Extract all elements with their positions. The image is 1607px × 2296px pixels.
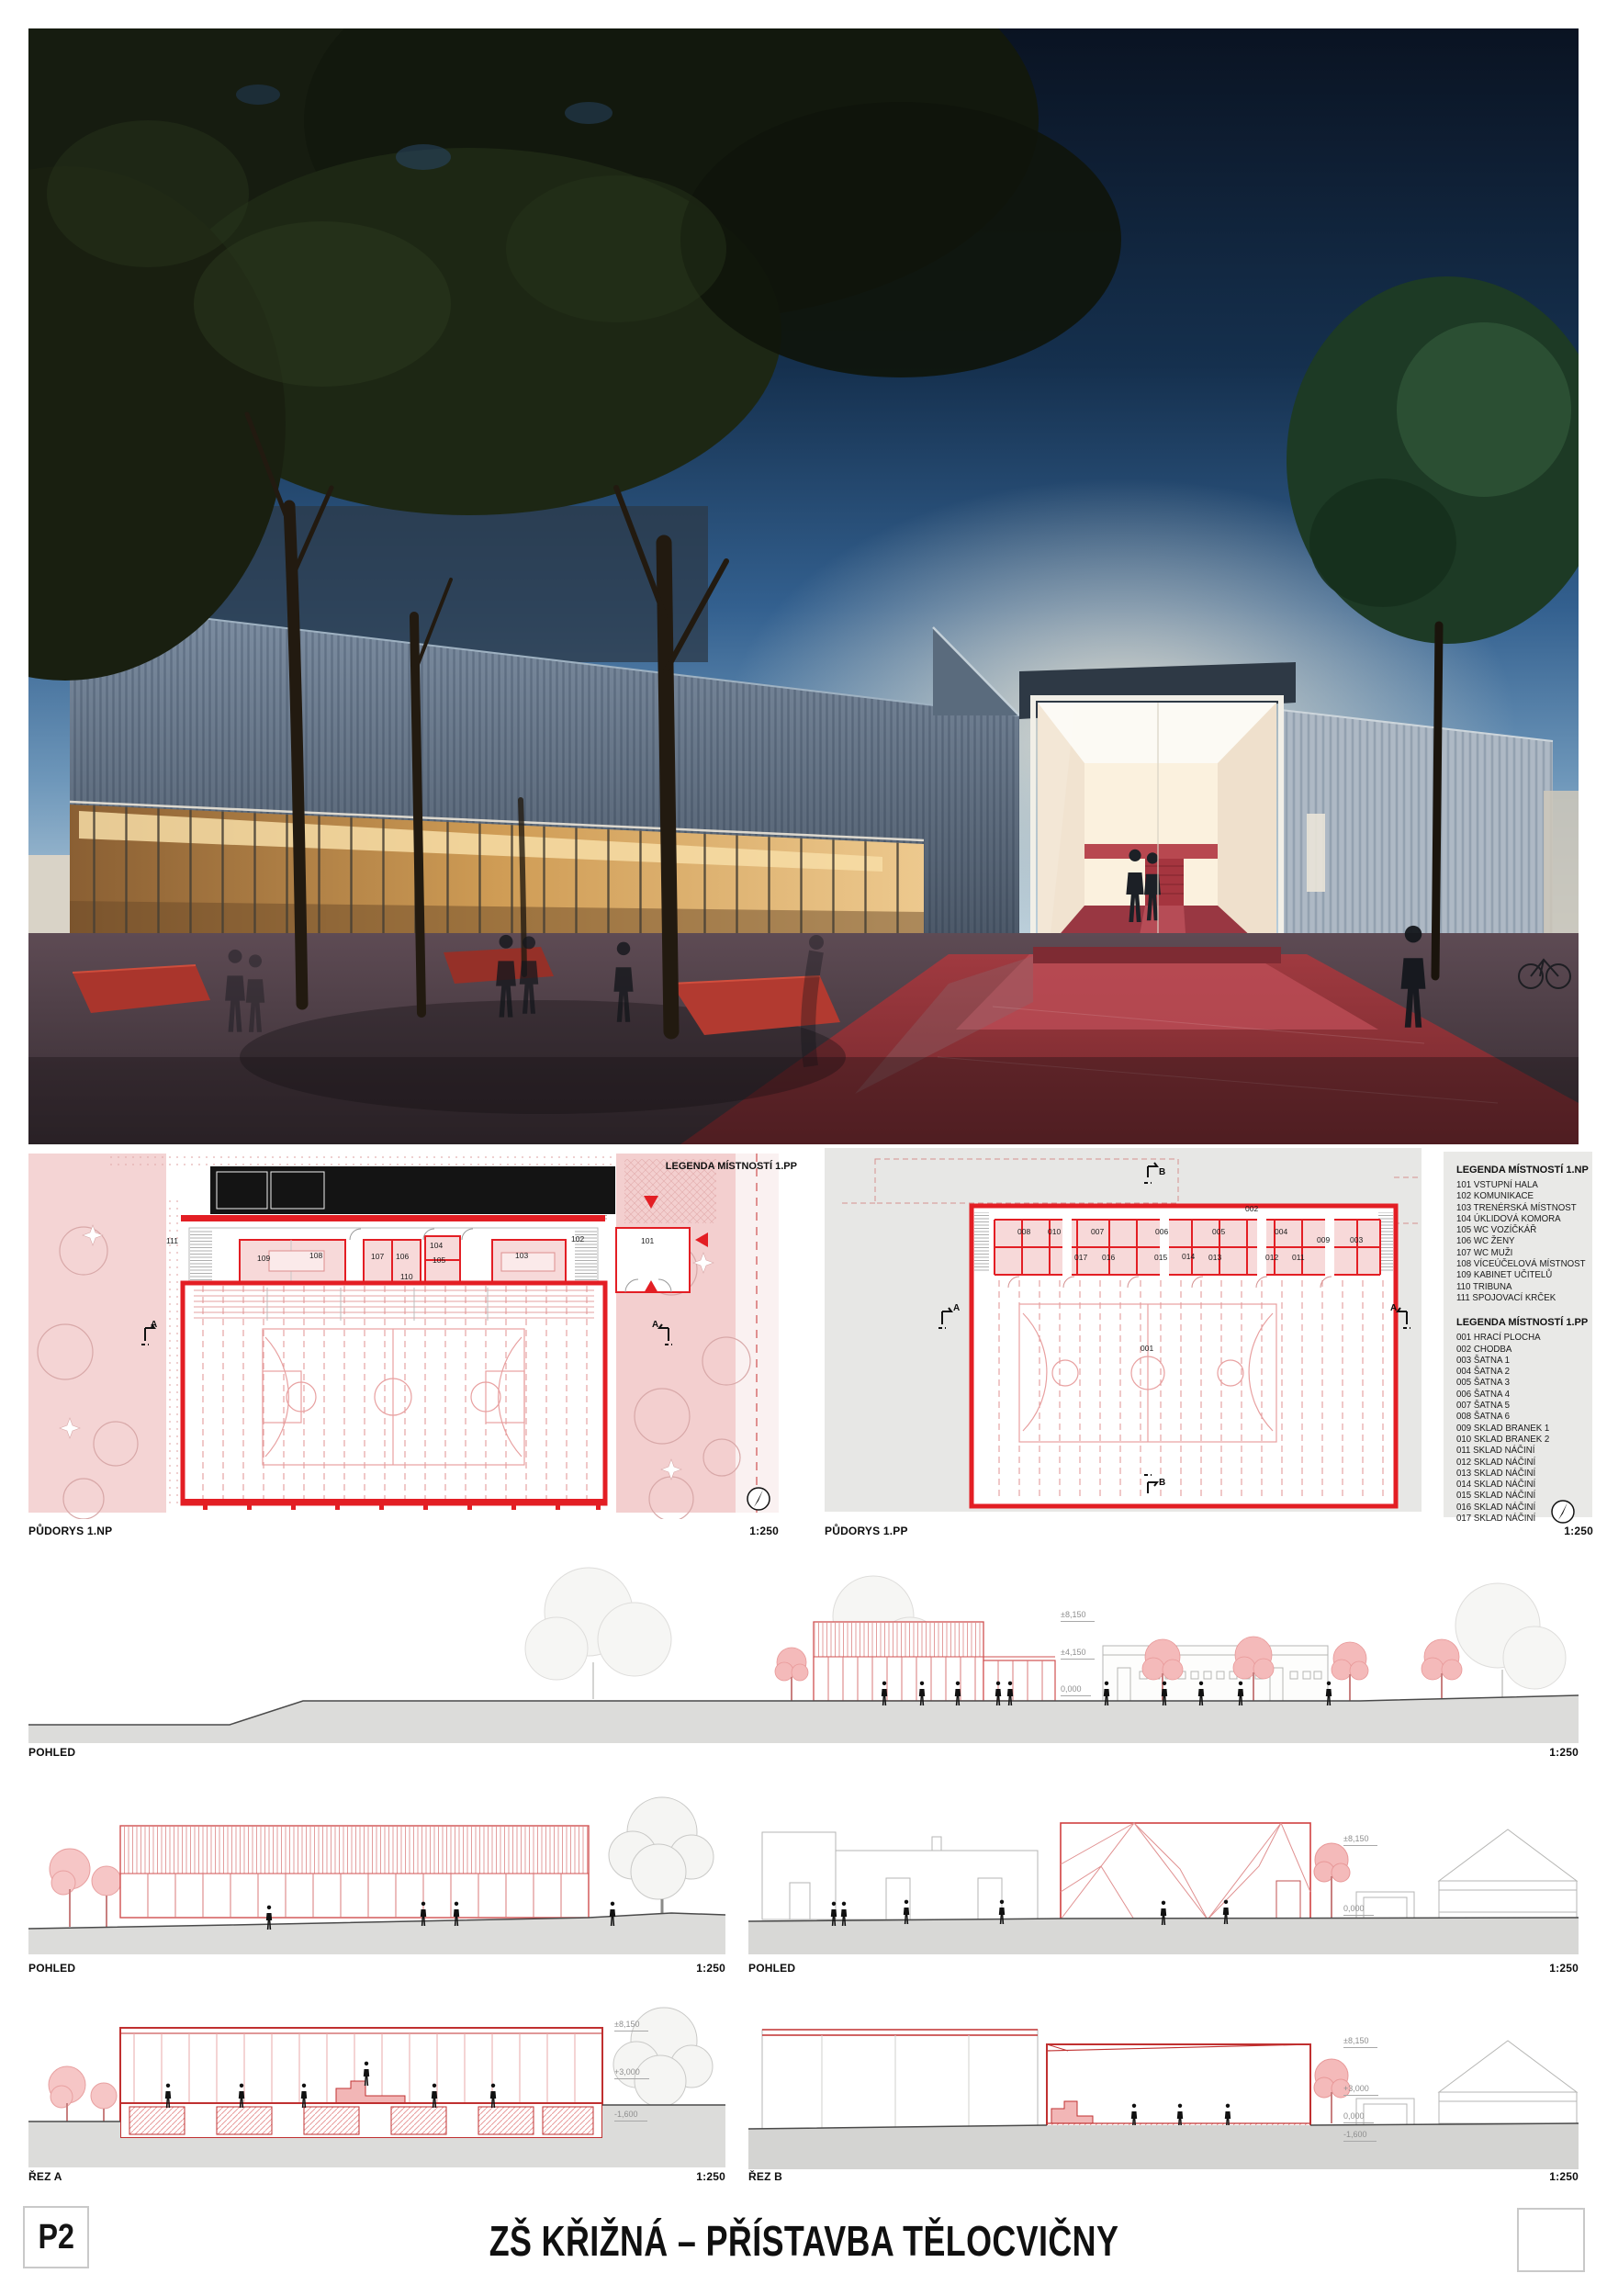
room-number: 008 — [1017, 1228, 1030, 1236]
level-annotation: ±8,150 — [1343, 1835, 1377, 1846]
legend-item: 011 SKLAD NÁČINÍ — [1456, 1446, 1587, 1457]
legend-item: 013 SKLAD NÁČINÍ — [1456, 1469, 1587, 1480]
existing-school-elevation — [1103, 1646, 1328, 1701]
legend-pp-title: LEGENDA MÍSTNOSTÍ 1.PP — [1456, 1317, 1587, 1328]
plan-np-drawing — [28, 1141, 779, 1519]
legend-item: 003 ŠATNA 1 — [1456, 1356, 1587, 1367]
new-gym-elevation — [814, 1622, 1055, 1701]
gable-house-outline — [1439, 1829, 1577, 1918]
legend-item: 108 VÍCEÚČELOVÁ MÍSTNOST — [1456, 1259, 1587, 1270]
np-hall — [183, 1283, 605, 1510]
legend-item: 006 ŠATNA 4 — [1456, 1390, 1587, 1401]
room-number: 103 — [515, 1252, 528, 1260]
legend-item: 009 SKLAD BRANEK 1 — [1456, 1424, 1587, 1435]
section-b-scale: 1:250 — [1549, 2170, 1579, 2183]
plan-np-caption-label: PŮDORYS 1.NP — [28, 1525, 112, 1537]
legend-item: 106 WC ŽENY — [1456, 1236, 1587, 1247]
level-annotation: ±4,150 — [1061, 1649, 1095, 1660]
north-arrow-icon — [1545, 1493, 1581, 1530]
room-number: 108 — [309, 1252, 322, 1260]
existing-buildings — [762, 1832, 1038, 1919]
room-number: 107 — [371, 1253, 384, 1261]
plan-np-legend-title: LEGENDA MÍSTNOSTÍ 1.PP — [666, 1161, 797, 1172]
room-number: 007 — [1091, 1228, 1104, 1236]
existing-school-black — [210, 1166, 615, 1221]
level-annotation: ±8,150 — [1061, 1611, 1095, 1622]
elevation-west-drawing — [28, 1782, 725, 1954]
section-marker-b: B — [1159, 1479, 1165, 1488]
room-number: 010 — [1048, 1228, 1061, 1236]
level-annotation: 0,000 — [1061, 1685, 1091, 1696]
hall-section — [120, 2028, 602, 2138]
room-number: 016 — [1102, 1254, 1115, 1262]
elevation-west-scale: 1:250 — [696, 1962, 725, 1975]
level-annotation: 0,000 — [1343, 2112, 1374, 2123]
plan-pp-panel: 008 010 007 006 005 004 009 003 017 016 … — [825, 1141, 1422, 1519]
room-number: 012 — [1265, 1254, 1278, 1262]
legend-item: 014 SKLAD NÁČINÍ — [1456, 1480, 1587, 1491]
plan-pp-drawing — [825, 1141, 1422, 1519]
elevation-main-scale: 1:250 — [1549, 1746, 1579, 1759]
level-annotation: 0,000 — [1343, 1905, 1374, 1916]
legend-item: 109 KABINET UČITELŮ — [1456, 1270, 1587, 1281]
elevation-west-panel — [28, 1782, 725, 1954]
legend-item: 111 SPOJOVACÍ KRČEK — [1456, 1293, 1587, 1304]
legend-np-list: 101 VSTUPNÍ HALA102 KOMUNIKACE103 TRENÉR… — [1456, 1180, 1587, 1304]
room-legend: LEGENDA MÍSTNOSTÍ 1.NP 101 VSTUPNÍ HALA1… — [1444, 1152, 1592, 1517]
existing-section — [762, 2030, 1038, 2129]
presentation-board: 111 109 108 107 106 104 105 103 102 101 … — [0, 0, 1607, 2296]
elevation-main-caption: POHLED 1:250 — [28, 1746, 1579, 1759]
section-b-label: ŘEZ B — [748, 2170, 782, 2183]
plan-pp-caption-label: PŮDORYS 1.PP — [825, 1525, 908, 1537]
elevation-west-caption: POHLED 1:250 — [28, 1962, 725, 1975]
section-b-drawing — [748, 1993, 1579, 2169]
legend-item: 008 ŠATNA 6 — [1456, 1412, 1587, 1423]
gable-house-outline — [1439, 2041, 1577, 2129]
legend-item: 107 WC MUŽI — [1456, 1248, 1587, 1259]
room-number: 009 — [1317, 1236, 1330, 1244]
red-wall-top — [181, 1215, 605, 1221]
legend-item: 002 CHODBA — [1456, 1345, 1587, 1356]
room-number: 110 — [400, 1273, 413, 1281]
section-b-caption: ŘEZ B 1:250 — [748, 2170, 1579, 2183]
room-number: 013 — [1208, 1254, 1221, 1262]
room-number: 006 — [1155, 1228, 1168, 1236]
level-annotation: ±8,150 — [614, 2020, 648, 2032]
elevation-west-label: POHLED — [28, 1962, 75, 1975]
section-marker-b: B — [1159, 1168, 1165, 1177]
section-marker-a: A — [953, 1304, 960, 1313]
ground-band — [28, 1913, 725, 1954]
section-a-caption: ŘEZ A 1:250 — [28, 2170, 725, 2183]
elevation-east-scale: 1:250 — [1549, 1962, 1579, 1975]
column-ticks — [203, 1505, 601, 1510]
room-number: 101 — [641, 1237, 654, 1245]
level-annotation: +3,000 — [1343, 2085, 1378, 2096]
room-number: 111 — [166, 1237, 178, 1245]
room-number: 102 — [571, 1235, 584, 1244]
hero-render — [28, 28, 1579, 1144]
room-number: 011 — [1292, 1254, 1305, 1262]
elevation-east-caption: POHLED 1:250 — [748, 1962, 1579, 1975]
section-marker-a: A — [151, 1321, 157, 1330]
gym-faceted-elevation — [1061, 1823, 1310, 1919]
legend-item: 103 TRENÉRSKÁ MÍSTNOST — [1456, 1203, 1587, 1214]
hall-section-b — [1047, 2044, 1310, 2138]
level-annotation: +3,000 — [614, 2068, 649, 2079]
room-number: 104 — [430, 1242, 443, 1250]
board-title: ZŠ KŘIŽNÁ – PŘÍSTAVBA TĚLOCVIČNY — [489, 2216, 1118, 2266]
legend-item: 005 ŠATNA 3 — [1456, 1378, 1587, 1389]
plan-np-panel: 111 109 108 107 106 104 105 103 102 101 … — [28, 1141, 779, 1519]
legend-item: 010 SKLAD BRANEK 2 — [1456, 1435, 1587, 1446]
elevation-east-panel: ±8,150 0,000 — [748, 1782, 1579, 1954]
legend-item: 001 HRACÍ PLOCHA — [1456, 1333, 1587, 1344]
legend-item: 101 VSTUPNÍ HALA — [1456, 1180, 1587, 1191]
level-annotation: ±8,150 — [1343, 2037, 1377, 2048]
elevation-east-drawing — [748, 1782, 1579, 1954]
right-slat-wing — [1281, 710, 1579, 956]
foreground-vignette — [28, 1057, 1579, 1144]
north-arrow-icon — [747, 1488, 770, 1510]
legend-np-title: LEGENDA MÍSTNOSTÍ 1.NP — [1456, 1165, 1587, 1176]
elevation-main-panel: ±8,150 ±4,150 0,000 — [28, 1561, 1579, 1745]
ground-band — [748, 2123, 1579, 2169]
legend-item: 105 WC VOZÍČKÁŘ — [1456, 1225, 1587, 1236]
section-b-panel: ±8,150 +3,000 0,000 -1,600 — [748, 1993, 1579, 2169]
room-number: 105 — [433, 1256, 445, 1265]
gym-long-elevation — [120, 1826, 589, 1918]
room-number: 005 — [1212, 1228, 1225, 1236]
entrance-glass-cube — [1033, 698, 1281, 964]
plan-np-caption: PŮDORYS 1.NP 1:250 — [28, 1525, 779, 1537]
room-number: 109 — [257, 1255, 270, 1263]
room-number: 003 — [1350, 1236, 1363, 1244]
room-number: 004 — [1275, 1228, 1287, 1236]
elevation-east-label: POHLED — [748, 1962, 795, 1975]
pink-trees — [50, 1849, 121, 1927]
ground-band — [748, 1918, 1579, 1954]
ground-band — [28, 1695, 1579, 1743]
legend-item: 110 TRIBUNA — [1456, 1282, 1587, 1293]
room-number: 015 — [1154, 1254, 1167, 1262]
level-annotation: -1,600 — [1343, 2131, 1377, 2142]
legend-item: 104 ÚKLIDOVÁ KOMORA — [1456, 1214, 1587, 1225]
empty-title-box — [1517, 2208, 1585, 2272]
room-number-court: 001 — [1141, 1345, 1153, 1353]
render-scene — [28, 28, 1579, 1144]
elevation-main-label: POHLED — [28, 1746, 75, 1759]
section-marker-a: A — [652, 1321, 658, 1330]
board-title-row: ZŠ KŘIŽNÁ – PŘÍSTAVBA TĚLOCVIČNY — [0, 2216, 1607, 2266]
section-a-scale: 1:250 — [696, 2170, 725, 2183]
legend-item: 004 ŠATNA 2 — [1456, 1367, 1587, 1378]
plan-np-scale: 1:250 — [749, 1525, 779, 1537]
plan-pp-caption: PŮDORYS 1.PP 1:250 — [825, 1525, 1593, 1537]
room-number: 106 — [396, 1253, 409, 1261]
level-annotation: -1,600 — [614, 2110, 647, 2122]
legend-item: 102 KOMUNIKACE — [1456, 1191, 1587, 1202]
elevation-main-drawing — [28, 1561, 1579, 1745]
section-a-label: ŘEZ A — [28, 2170, 62, 2183]
legend-item: 007 ŠATNA 5 — [1456, 1401, 1587, 1412]
section-a-panel: ±8,150 +3,000 -1,600 — [28, 1993, 725, 2167]
room-number: 017 — [1074, 1254, 1087, 1262]
room-number: 014 — [1182, 1253, 1195, 1261]
section-marker-a: A — [1390, 1304, 1397, 1313]
legend-item: 012 SKLAD NÁČINÍ — [1456, 1458, 1587, 1469]
room-number-corridor: 002 — [1245, 1205, 1258, 1213]
